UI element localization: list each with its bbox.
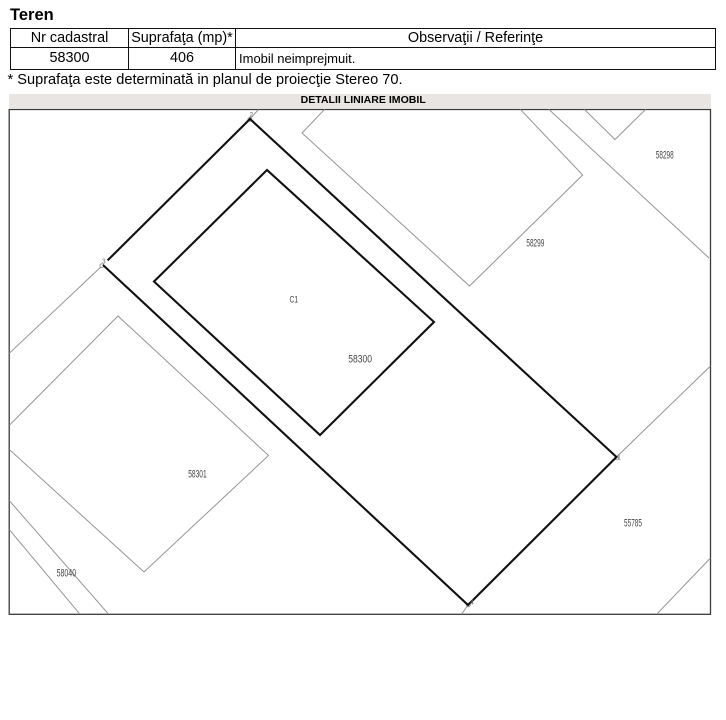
svg-text:58301: 58301 — [188, 469, 207, 481]
svg-text:1: 1 — [617, 452, 621, 461]
svg-text:58040: 58040 — [57, 568, 77, 580]
svg-text:58299: 58299 — [526, 238, 544, 250]
svg-text:55785: 55785 — [624, 518, 642, 530]
svg-text:C1: C1 — [290, 295, 299, 305]
svg-text:2: 2 — [250, 110, 254, 119]
svg-text:58300: 58300 — [348, 354, 372, 366]
svg-text:58298: 58298 — [656, 150, 674, 162]
svg-text:3: 3 — [102, 257, 106, 266]
svg-text:4: 4 — [470, 597, 474, 606]
